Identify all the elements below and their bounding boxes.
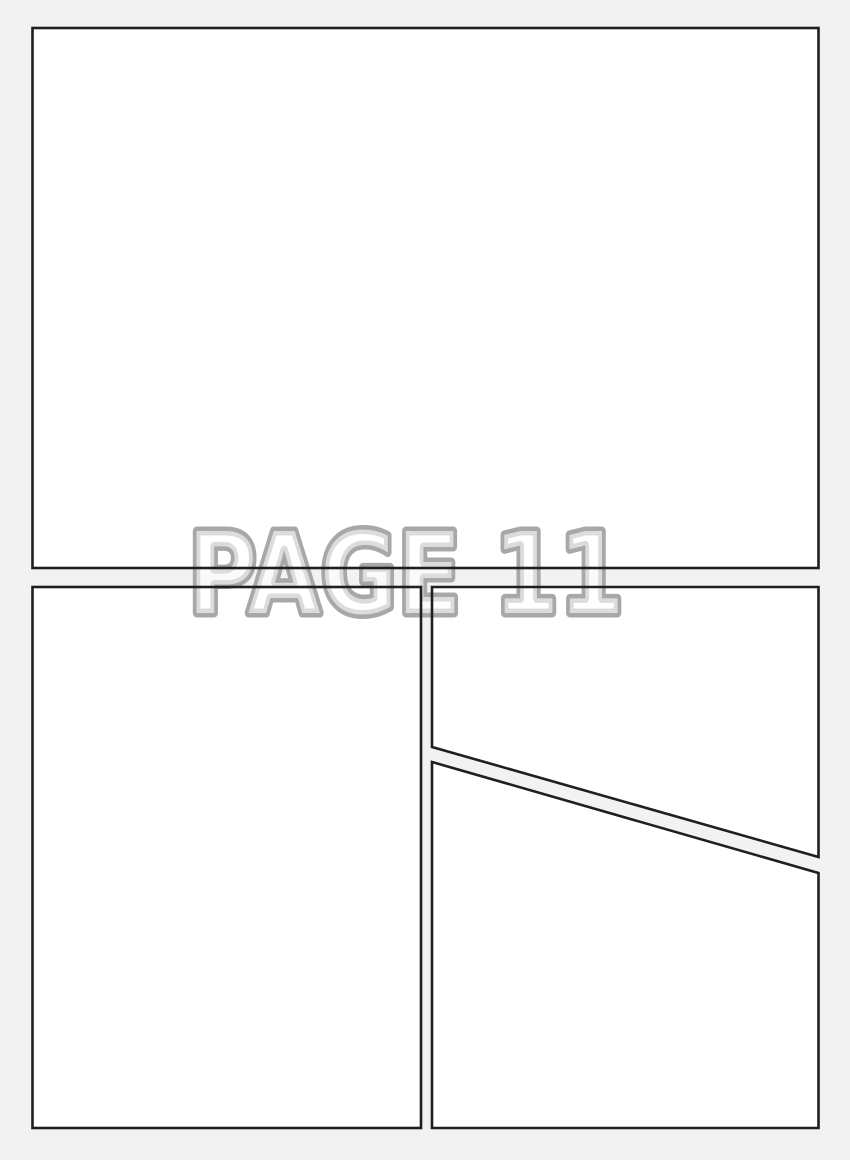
- comic-page-template: PAGE 11: [0, 0, 850, 1160]
- page-number-label: PAGE 11: [188, 510, 624, 640]
- panel-top: [33, 28, 819, 568]
- panel-bottom-left: [33, 587, 422, 1128]
